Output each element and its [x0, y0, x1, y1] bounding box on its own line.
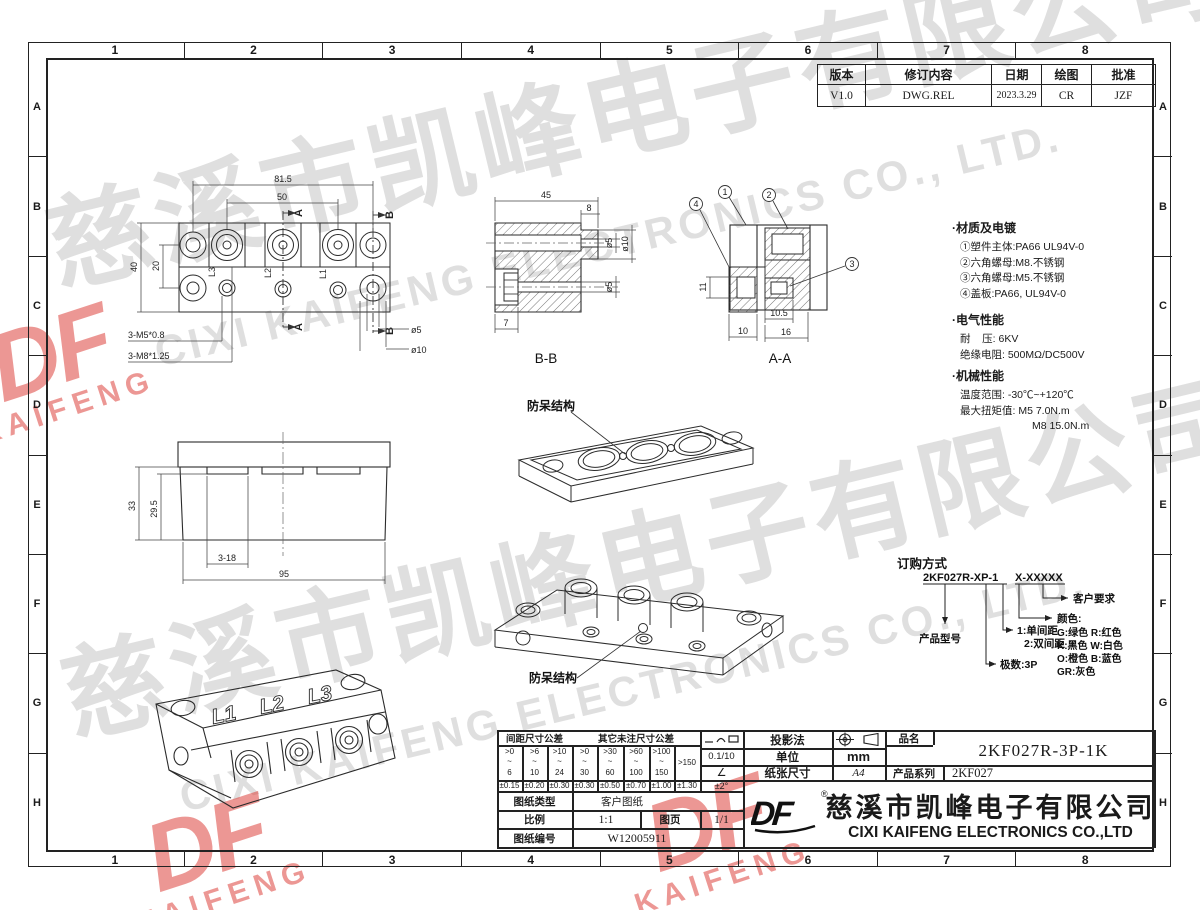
tol-tilde: ~	[623, 756, 649, 767]
body-isometric-view: 防呆结构	[483, 510, 798, 695]
title-block: 间距尺寸公差 其它未注尺寸公差 >0 >6 >10 >0 >30 >60 >10…	[497, 730, 1157, 848]
zone-label: F	[28, 554, 46, 653]
side-elevation-view: 33 29.5 3-18 95	[123, 428, 433, 590]
revision-table: 版本 修订内容 日期 绘图 批准 V1.0 DWG.REL 2023.3.29 …	[817, 64, 1156, 107]
svg-text:20: 20	[151, 261, 161, 271]
zone-label: A	[1154, 58, 1172, 156]
notes-mechanical: ·机械性能 温度范围: -30℃~+120℃ 最大扭矩值: M5 7.0N.m …	[952, 367, 1167, 435]
notes-electrical: ·电气性能 耐 压: 6KV 绝缘电阻: 500MΩ/DC500V	[952, 311, 1167, 363]
unit-value: mm	[832, 748, 885, 765]
product-name-value: 2KF027R-3P-1K	[933, 738, 1154, 764]
svg-text:ø5: ø5	[604, 238, 614, 249]
svg-text:16: 16	[781, 327, 791, 337]
zone-rows-left: A B C D E F G H	[28, 58, 46, 852]
cover-isometric-view: 防呆结构	[505, 394, 780, 506]
notes-electrical-title: ·电气性能	[952, 311, 1167, 328]
cover-outline	[519, 426, 753, 502]
tol-value: ±0.30	[572, 780, 597, 791]
zone-label: 8	[1015, 42, 1154, 58]
svg-text:L1: L1	[318, 269, 328, 279]
svg-text:ø5: ø5	[411, 325, 422, 335]
zone-label: 8	[1015, 852, 1154, 867]
projection-symbol	[832, 731, 885, 748]
svg-text:7: 7	[503, 318, 508, 328]
iso-outline	[156, 670, 395, 808]
zone-label: 6	[738, 852, 877, 867]
svg-text:ø10: ø10	[411, 345, 427, 355]
zone-label: 3	[322, 42, 461, 58]
zone-label: 4	[461, 42, 600, 58]
svg-text:2: 2	[766, 190, 771, 200]
tol-value: ±0.20	[522, 780, 547, 791]
zone-label: E	[28, 455, 46, 554]
engineering-drawing-sheet: 慈溪市凯峰电子有限公司 CIXI KAIFENG ELECTRONICS CO.…	[0, 0, 1200, 910]
drawing-number-label: 图纸编号	[497, 829, 572, 847]
m8-nut-section	[765, 228, 810, 260]
tol-tilde: ~	[497, 756, 522, 767]
svg-text:10.5: 10.5	[770, 308, 788, 318]
notes-material: ·材质及电镀 ①塑件主体:PA66 UL94V-0 ②六角螺母:M8.不锈钢 ③…	[952, 219, 1167, 302]
scale-label: 比例	[497, 811, 572, 828]
front-view-circuit-labels: L3 L2 L1	[207, 267, 328, 279]
revision-header: 绘图	[1041, 65, 1091, 84]
svg-text:L2: L2	[263, 268, 273, 278]
zone-label: 5	[600, 852, 739, 867]
tol-tilde: ~	[572, 756, 597, 767]
foolproof-label-top: 防呆结构	[527, 398, 575, 413]
svg-text:40: 40	[129, 262, 139, 272]
tol-tilde: ~	[597, 756, 623, 767]
svg-text:K:黑色 W:白色: K:黑色 W:白色	[1057, 639, 1123, 652]
svg-text:极数:3P: 极数:3P	[1000, 658, 1037, 671]
zone-label: 1	[46, 42, 184, 58]
zone-label: C	[28, 256, 46, 355]
zone-label: 4	[461, 852, 600, 867]
svg-text:3-18: 3-18	[218, 553, 236, 563]
note-line: ①塑件主体:PA66 UL94V-0	[952, 240, 1167, 256]
ordering-code-model: 2KF027R-XP-1	[923, 572, 998, 584]
zone-label: 3	[322, 852, 461, 867]
tolerance-header-pitch: 间距尺寸公差	[497, 731, 572, 745]
svg-text:1:单间距: 1:单间距	[1017, 624, 1058, 637]
svg-text:81.5: 81.5	[274, 174, 292, 184]
zone-columns-top: 1 2 3 4 5 6 7 8	[46, 42, 1154, 58]
terminal-labels: L1 L2 L3	[210, 682, 335, 729]
zone-label: D	[28, 355, 46, 454]
notes-mechanical-title: ·机械性能	[952, 367, 1167, 384]
projection-label: 投影法	[743, 731, 832, 748]
svg-text:ø5: ø5	[604, 282, 614, 293]
svg-text:10: 10	[738, 326, 748, 336]
section-letters: A A B B	[293, 209, 396, 335]
company-name-en: CIXI KAIFENG ELECTRONICS CO.,LTD	[827, 822, 1154, 844]
angle-tolerance: ±2°	[700, 780, 743, 791]
product-series-label: 产品系列	[885, 766, 943, 780]
ordering-title: 订购方式	[897, 556, 948, 571]
revision-content: DWG.REL	[865, 84, 991, 106]
revision-drawn-by: CR	[1041, 84, 1091, 106]
revision-version: V1.0	[818, 84, 865, 106]
section-aa-drawing: 1 2 4 3 11 10.5 10 16 A-A	[688, 183, 898, 383]
product-name-label: 品名	[885, 731, 933, 745]
zone-label: H	[28, 753, 46, 852]
zone-label: 1	[46, 852, 184, 867]
tolerance-header-other: 其它未注尺寸公差	[572, 731, 700, 745]
svg-text:3-M5*0.8: 3-M5*0.8	[128, 330, 165, 340]
df-logo-icon: DF	[751, 792, 821, 836]
terminal-isometric-view: L1 L2 L3	[131, 638, 416, 828]
note-line: 耐 压: 6KV	[952, 332, 1167, 348]
zone-label: B	[28, 156, 46, 255]
ordering-branch-lines	[923, 584, 1068, 664]
zone-label: 5	[600, 42, 739, 58]
first-angle-projection-icon	[834, 732, 884, 747]
tol-value: ±0.15	[497, 780, 522, 791]
tol-range-over150: >150	[674, 745, 700, 780]
note-line: 绝缘电阻: 500MΩ/DC500V	[952, 348, 1167, 364]
svg-text:产品型号: 产品型号	[919, 632, 961, 645]
tol-value: ±0.30	[547, 780, 572, 791]
svg-text:ø10: ø10	[620, 236, 630, 252]
dimension-lines	[135, 467, 385, 584]
svg-text:G:绿色 R:红色: G:绿色 R:红色	[1057, 626, 1121, 639]
zone-label: 6	[738, 42, 877, 58]
svg-text:L3: L3	[207, 267, 217, 277]
revision-header: 日期	[991, 65, 1041, 84]
drawing-number-value: W12005911	[572, 829, 702, 847]
zone-label: 7	[877, 42, 1016, 58]
zone-label: 7	[877, 852, 1016, 867]
revision-approved-by: JZF	[1091, 84, 1155, 106]
svg-text:L3: L3	[306, 682, 335, 709]
svg-text:1: 1	[722, 187, 727, 197]
product-series-value: 2KF027	[952, 766, 1052, 780]
angle-symbol: ∠	[700, 765, 743, 780]
svg-text:3-M8*1.25: 3-M8*1.25	[128, 351, 170, 361]
tol-range: 60	[597, 767, 623, 778]
zone-label: G	[28, 653, 46, 752]
svg-text:B: B	[384, 211, 396, 219]
svg-text:客户要求: 客户要求	[1072, 592, 1115, 605]
svg-text:4: 4	[693, 199, 698, 209]
paper-size-value: A4	[832, 765, 885, 780]
revision-header: 修订内容	[865, 65, 991, 84]
front-view-drawing: L3 L2 L1 A A B B	[125, 163, 445, 381]
ordering-color-options: G:绿色 R:红色 K:黑色 W:白色 O:橙色 B:蓝色 GR:灰色	[1057, 626, 1123, 678]
revision-date: 2023.3.29	[991, 84, 1041, 106]
svg-text:O:橙色 B:蓝色: O:橙色 B:蓝色	[1057, 652, 1121, 665]
section-cut-lines	[283, 211, 386, 333]
zone-label: E	[1154, 455, 1172, 554]
svg-text:45: 45	[541, 190, 551, 200]
notes-material-title: ·材质及电镀	[952, 219, 1167, 236]
tol-range: 30	[572, 767, 597, 778]
svg-text:11: 11	[698, 282, 708, 291]
zone-label: 2	[184, 852, 323, 867]
section-bb-label: B-B	[535, 351, 558, 366]
drawing-type-label: 图纸类型	[497, 792, 572, 810]
company-logo: DF	[751, 792, 821, 836]
svg-text:50: 50	[277, 192, 287, 202]
tol-value: ±1.00	[649, 780, 674, 791]
svg-text:L1: L1	[210, 702, 238, 729]
svg-text:33: 33	[127, 501, 137, 511]
scale-value: 1:1	[572, 811, 640, 828]
sheet-label: 图页	[640, 811, 700, 828]
tol-value: ±0.50	[597, 780, 623, 791]
revision-header: 批准	[1091, 65, 1155, 84]
tol-range: 24	[547, 767, 572, 778]
label-leader	[577, 631, 641, 678]
svg-text:L2: L2	[258, 692, 287, 719]
svg-text:3: 3	[849, 259, 854, 269]
geometry-symbols-icon	[700, 731, 743, 747]
svg-text:颜色:: 颜色:	[1057, 612, 1082, 625]
note-line: ③六角螺母:M5.不锈钢	[952, 271, 1167, 287]
note-line: ②六角螺母:M8.不锈钢	[952, 256, 1167, 272]
zone-label: 2	[184, 42, 323, 58]
flatness-tolerance: 0.1/10	[700, 748, 743, 765]
tol-range: 100	[623, 767, 649, 778]
tol-range: 6	[497, 767, 522, 778]
tol-tilde: ~	[649, 756, 674, 767]
svg-text:A: A	[293, 209, 305, 217]
ordering-diagram: 订购方式 2KF027R-XP-1 X-XXXXX 产品型号 极数:3P 1:单…	[893, 554, 1178, 704]
side-outline	[178, 442, 390, 540]
zone-label: A	[28, 58, 46, 156]
tol-value: ±0.70	[623, 780, 649, 791]
m5-nut-section	[765, 278, 793, 298]
tol-range: 10	[522, 767, 547, 778]
svg-text:GR:灰色: GR:灰色	[1057, 665, 1095, 678]
revision-header: 版本	[818, 65, 865, 84]
body-outline	[495, 579, 783, 675]
unit-label: 单位	[743, 748, 832, 765]
foolproof-label-bottom: 防呆结构	[529, 670, 577, 685]
svg-text:29.5: 29.5	[149, 500, 159, 518]
section-bb-drawing: 45 8 ø5 ø10 ø5 7 B-B	[478, 183, 683, 383]
svg-text:DF: DF	[751, 795, 796, 833]
cover-section	[729, 267, 757, 312]
note-line: 温度范围: -30℃~+120℃	[952, 388, 1167, 404]
note-line: M8 15.0N.m	[952, 419, 1167, 435]
svg-text:8: 8	[586, 203, 591, 213]
note-line: ④盖板:PA66, UL94V-0	[952, 287, 1167, 303]
section-aa-label: A-A	[769, 351, 792, 366]
svg-text:A: A	[293, 323, 305, 331]
zone-columns-bottom: 1 2 3 4 5 6 7 8	[46, 852, 1154, 867]
ordering-code-suffix: X-XXXXX	[1015, 572, 1063, 584]
company-name-cn: 慈溪市凯峰电子有限公司	[827, 788, 1154, 822]
note-line: 最大扭矩值: M5 7.0N.m	[952, 404, 1167, 420]
sheet-value: 1/1	[700, 811, 743, 828]
tol-value: ±1.30	[674, 780, 700, 791]
line-arc-square-icon	[703, 733, 741, 745]
tol-tilde: ~	[522, 756, 547, 767]
tol-tilde: ~	[547, 756, 572, 767]
drawing-type-value: 客户图纸	[572, 792, 672, 810]
tol-range: 150	[649, 767, 674, 778]
svg-text:95: 95	[279, 569, 289, 579]
paper-size-label: 纸张尺寸	[743, 765, 832, 780]
